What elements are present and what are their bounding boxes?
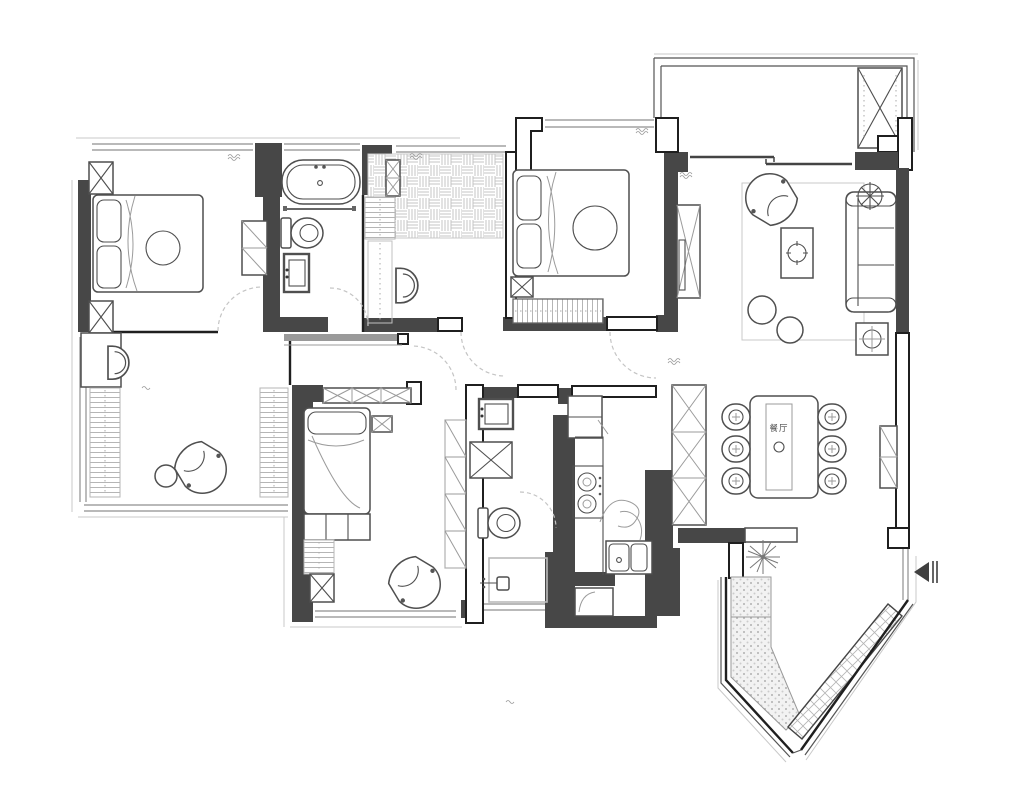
fridge-icon (568, 396, 608, 438)
desk-chair-icon (108, 346, 129, 379)
room-entry (721, 540, 937, 757)
tv-cabinet-icon (677, 205, 700, 298)
entry-console-icon (745, 528, 797, 542)
coffee-table-icon (781, 228, 813, 278)
plant-icon (746, 540, 780, 574)
room-dining: 餐厅 (672, 385, 897, 542)
wardrobe-icon (445, 420, 466, 568)
dining-table-icon: 餐厅 (750, 396, 818, 498)
bed-drawers-icon (304, 514, 370, 540)
pouf-icon (748, 296, 776, 324)
toilet-icon (478, 508, 520, 538)
shower-icon (480, 558, 547, 602)
side-table-icon (372, 416, 392, 432)
vanity-sink-icon (479, 399, 513, 429)
pouf-icon (155, 465, 177, 487)
entry-floor-hatch (731, 577, 800, 730)
nightstand-icon (89, 162, 113, 194)
balcony-wall-step (878, 136, 898, 152)
room-bedroom-bottom-left (304, 388, 466, 618)
cabinet-icon (310, 574, 334, 602)
nightstand-icon (89, 301, 113, 333)
floor-plan-drawing: 餐厅 (0, 0, 1024, 797)
entry-wall-right-outer (793, 604, 913, 755)
side-cabinet-icon (880, 426, 897, 488)
dining-chair-icon (818, 436, 846, 462)
dining-table-label: 餐厅 (769, 424, 788, 434)
wardrobe-icon (242, 221, 267, 275)
bathtub-icon (282, 160, 360, 204)
stove-icon (573, 466, 603, 518)
room-bathroom-top (281, 160, 360, 292)
room-bedroom-top-left (89, 162, 267, 333)
dining-chair-icon (818, 404, 846, 430)
room-walk-in-closet (365, 154, 503, 323)
dining-chair-icon (722, 436, 750, 462)
desk-chair-icon (396, 268, 418, 303)
entry-arrow-icon (914, 561, 937, 583)
armchair-icon (166, 433, 236, 503)
counter-edge (575, 437, 603, 575)
overhead-cabinet-icon (323, 388, 411, 403)
entry-wall-right (801, 600, 908, 750)
vanity-sink-icon (284, 254, 309, 292)
bath-cabinet-icon (470, 442, 512, 478)
closet-cabinet-icon (386, 160, 400, 196)
toilet-icon (281, 218, 323, 248)
sofa-icon (846, 192, 896, 312)
armchair-icon (736, 164, 806, 234)
storage-column-icon (672, 385, 706, 525)
floor-drain-icon (856, 323, 888, 355)
nightstand-icon (511, 277, 533, 297)
dining-chair-icon (818, 468, 846, 494)
bed-icon (304, 408, 370, 514)
dining-chair-icon (722, 404, 750, 430)
towel-bar-icon (283, 206, 356, 211)
room-study (81, 333, 288, 503)
sliding-door-icon (690, 157, 852, 164)
shelf-strip-icon (90, 388, 120, 497)
washing-machine-icon (575, 588, 613, 616)
shelf-strip-icon (304, 540, 334, 574)
bench-icon (513, 299, 603, 323)
armchair-icon (380, 548, 450, 618)
bed-icon (93, 195, 203, 292)
balcony-wall-block (898, 118, 912, 170)
shelf-strip-icon (365, 197, 395, 323)
kitchen-sink-icon (600, 500, 652, 574)
room-master-bedroom (511, 170, 629, 323)
bed-icon (513, 170, 629, 276)
room-living (677, 164, 896, 355)
sliding-door-panel (284, 334, 408, 345)
dining-chair-icon (722, 468, 750, 494)
shoe-bench-icon (788, 604, 902, 739)
pouf-icon (777, 317, 803, 343)
floor-plan-canvas: 餐厅 (0, 0, 1024, 797)
shelf-strip-icon (260, 388, 288, 497)
